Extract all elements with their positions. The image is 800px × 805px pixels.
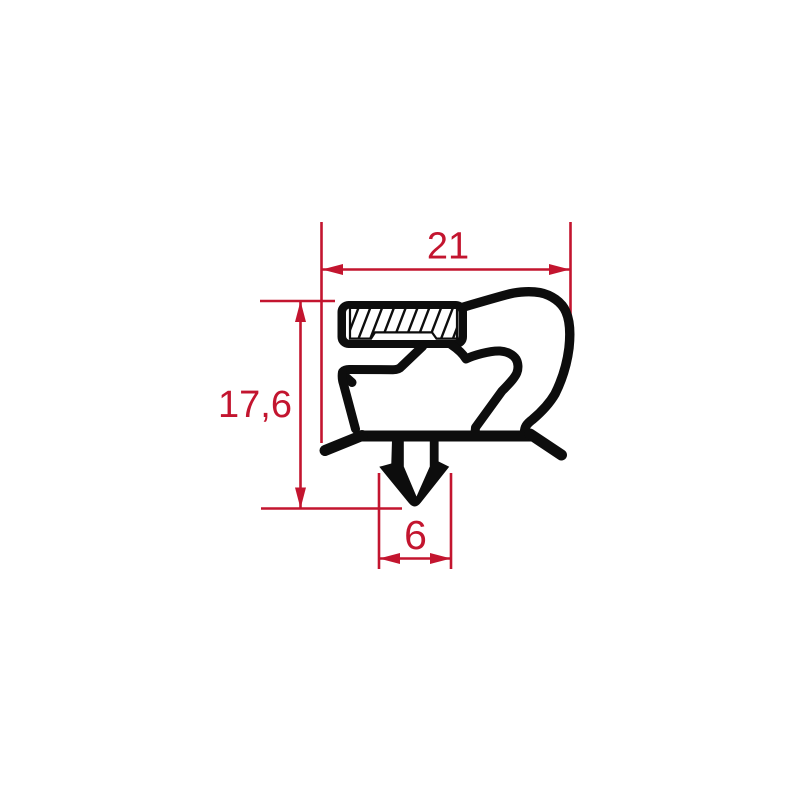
svg-text:17,6: 17,6 xyxy=(218,384,292,426)
svg-text:6: 6 xyxy=(404,512,427,558)
svg-text:21: 21 xyxy=(427,226,469,268)
